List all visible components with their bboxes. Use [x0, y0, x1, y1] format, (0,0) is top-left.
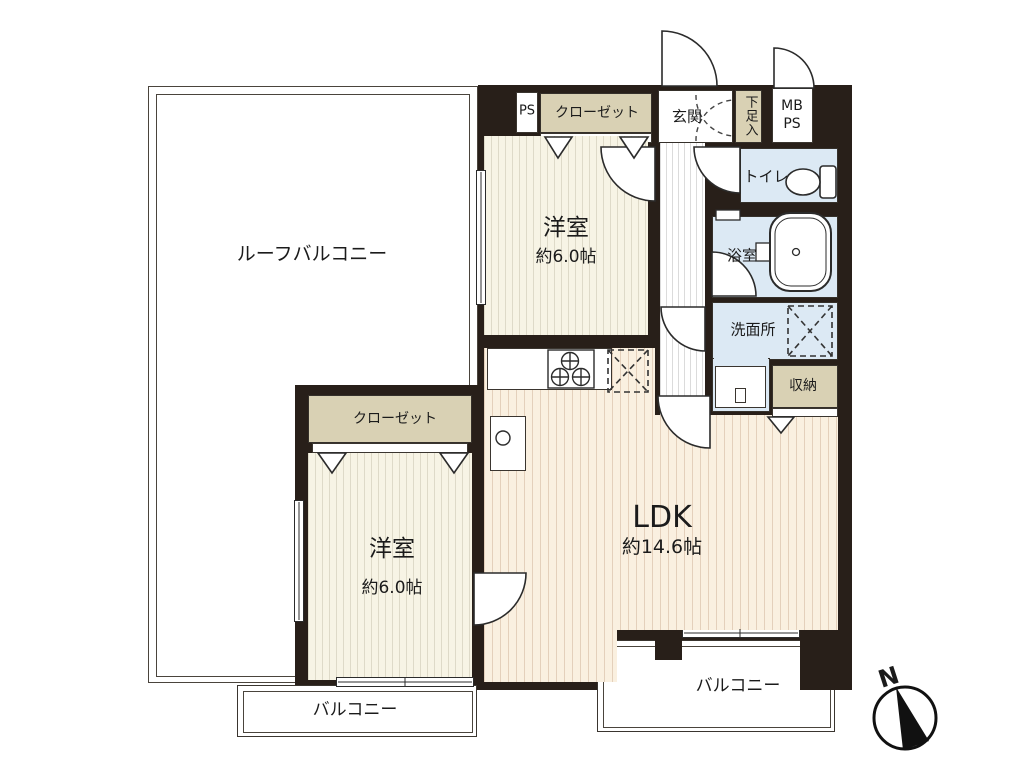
washing-machine-area — [788, 306, 832, 356]
sink-icon — [496, 431, 510, 445]
storage-label: 収納 — [789, 378, 817, 394]
closet-top-fold-doors — [545, 137, 648, 158]
bedroom-bottom-label: 洋室 — [369, 536, 415, 562]
washroom-door-arc — [661, 307, 705, 351]
floor-plan: ルーフバルコニー 洋室 約6.0帖 クローゼット PS 玄関 下足入 MB PS… — [0, 0, 1024, 768]
fixtures-overlay — [0, 0, 1024, 768]
refrigerator-area — [608, 350, 648, 392]
entrance-label: 玄関 — [672, 108, 702, 125]
bathroom-label: 浴室 — [727, 247, 757, 264]
closet-top-label: クローゼット — [555, 105, 639, 121]
toilet-door-arc — [694, 147, 740, 193]
bedroom-bottom-size: 約6.0帖 — [361, 579, 422, 599]
ldk-size: 約14.6帖 — [622, 537, 702, 559]
shoe-storage-label: 下足入 — [742, 95, 757, 137]
bedroom-top-label: 洋室 — [543, 215, 589, 241]
closet-bottom-fold-doors — [318, 453, 468, 473]
ldk-door-arc — [658, 396, 710, 448]
roof-balcony-label: ルーフバルコニー — [237, 244, 387, 266]
balcony-left-label: バルコニー — [313, 701, 398, 721]
bedroom-top-door-arc — [601, 147, 655, 201]
meter-box-door-arc — [774, 48, 814, 88]
ldk-label: LDK — [632, 501, 692, 536]
pipe-space-label: PS — [519, 105, 535, 120]
stove-icon — [548, 350, 594, 388]
meter-box-label-line2: PS — [783, 116, 800, 132]
bedroom-bottom-door-arc — [474, 573, 526, 625]
toilet-icon — [786, 166, 836, 198]
toilet-label: トイレ — [743, 168, 788, 185]
compass-icon — [874, 687, 936, 750]
closet-bottom-label: クローゼット — [353, 411, 437, 427]
meter-box-label-line1: MB — [781, 98, 803, 114]
north-needle — [896, 687, 929, 750]
balcony-right-label: バルコニー — [696, 677, 781, 697]
entrance-door-arc — [662, 31, 717, 86]
washroom-label: 洗面所 — [730, 321, 775, 338]
bedroom-top-size: 約6.0帖 — [535, 248, 596, 268]
storage-fold-door — [768, 417, 794, 433]
